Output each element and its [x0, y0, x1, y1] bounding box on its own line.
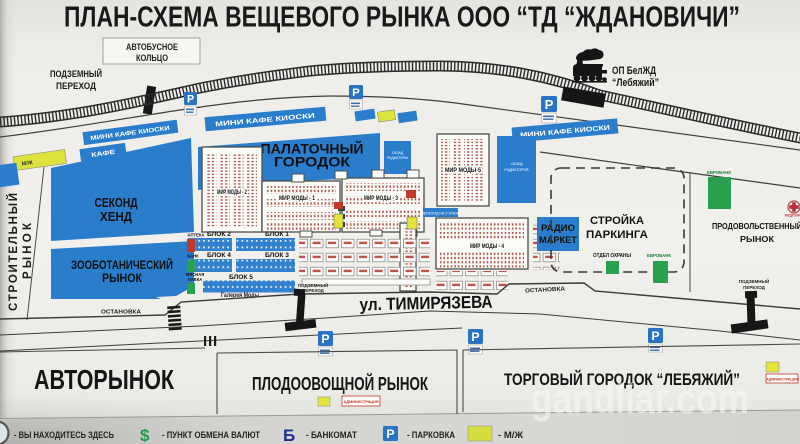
- svg-text:ПЕРЕХОД: ПЕРЕХОД: [743, 285, 766, 290]
- svg-text:Б: Б: [283, 426, 295, 444]
- svg-text:- ПАРКОВКА: - ПАРКОВКА: [407, 430, 455, 440]
- svg-text:МИР МОДЫ - 4: МИР МОДЫ - 4: [470, 243, 504, 250]
- svg-text:ПЛОДООВОЩНОЙ РЫНОК: ПЛОДООВОЩНОЙ РЫНОК: [252, 373, 429, 394]
- svg-text:ПОДЗЕМНЫЙ: ПОДЗЕМНЫЙ: [50, 68, 102, 80]
- svg-text:- ПУНКТ ОБМЕНА ВАЛЮТ: - ПУНКТ ОБМЕНА ВАЛЮТ: [162, 430, 260, 440]
- svg-text:$: $: [140, 426, 150, 444]
- svg-text:МЕДПУНКТ: МЕДПУНКТ: [785, 214, 800, 218]
- svg-text:РЫНОК: РЫНОК: [102, 273, 143, 285]
- svg-text:МИР МОДЫ - 2: МИР МОДЫ - 2: [217, 189, 247, 196]
- svg-text:МАРКЕТ: МАРКЕТ: [539, 235, 577, 246]
- svg-text:ЕВРОБАНК: ЕВРОБАНК: [647, 253, 671, 258]
- svg-text:“Лебяжий”: “Лебяжий”: [612, 77, 659, 89]
- svg-text:БЛОК 4: БЛОК 4: [207, 252, 231, 259]
- svg-text:БЛОК 3: БЛОК 3: [265, 252, 289, 259]
- svg-text:P: P: [352, 87, 360, 99]
- svg-text:P: P: [651, 329, 659, 343]
- svg-text:gandliar.com: gandliar.com: [531, 375, 749, 422]
- svg-text:ПЕРЕХОД НА 2 ЭТАЖ: ПЕРЕХОД НА 2 ЭТАЖ: [421, 212, 459, 216]
- svg-text:СКЛАД: СКЛАД: [392, 151, 404, 155]
- svg-text:ПЕРЕХОД: ПЕРЕХОД: [302, 288, 325, 293]
- svg-text:БЛОК 1: БЛОК 1: [265, 231, 289, 238]
- svg-text:P: P: [187, 93, 194, 105]
- svg-text:ПЛАН-СХЕМА ВЕЩЕВОГО РЫНКА ООО: ПЛАН-СХЕМА ВЕЩЕВОГО РЫНКА ООО “ТД “ЖДАНО…: [64, 2, 740, 34]
- svg-text:P: P: [386, 427, 394, 441]
- svg-text:АДМИНИСТРАЦИЯ: АДМИНИСТРАЦИЯ: [343, 400, 378, 404]
- svg-text:МИР МОДЫ - 3: МИР МОДЫ - 3: [364, 195, 398, 202]
- svg-text:- М/Ж: - М/Ж: [498, 430, 524, 440]
- svg-text:ГОРОДОК: ГОРОДОК: [274, 154, 350, 170]
- svg-text:СТРОИТЕЛЬНЫЙ: СТРОИТЕЛЬНЫЙ: [7, 193, 20, 311]
- svg-text:ОТДЕЛ ОХРАНЫ: ОТДЕЛ ОХРАНЫ: [593, 253, 632, 259]
- svg-text:АВТОРЫНОК: АВТОРЫНОК: [34, 364, 175, 395]
- svg-text:РАДИАТОРОВ: РАДИАТОРОВ: [504, 168, 529, 172]
- svg-text:СТРОЙКА: СТРОЙКА: [590, 214, 644, 227]
- svg-text:РАДИО: РАДИО: [541, 223, 575, 234]
- svg-text:ХЕНД: ХЕНД: [100, 210, 132, 224]
- svg-text:РАДИАТОРЫ: РАДИАТОРЫ: [387, 156, 408, 160]
- svg-text:ПЕРЕХОД: ПЕРЕХОД: [56, 81, 96, 92]
- svg-text:P: P: [545, 97, 554, 112]
- svg-text:РЫНОК: РЫНОК: [740, 235, 774, 244]
- svg-text:ПОДЗЕМНЫЙ: ПОДЗЕМНЫЙ: [298, 281, 328, 288]
- svg-text:СЕКОНД: СЕКОНД: [95, 196, 138, 210]
- svg-text:ул. ТИМИРЯЗЕВА: ул. ТИМИРЯЗЕВА: [359, 292, 493, 315]
- svg-text:ПОДЗЕМНЫЙ: ПОДЗЕМНЫЙ: [739, 277, 769, 284]
- svg-text:КОЛЬЦО: КОЛЬЦО: [136, 53, 168, 64]
- svg-text:ЛАВКА: ЛАВКА: [188, 277, 203, 282]
- svg-text:БЛОК 2: БЛОК 2: [207, 231, 231, 238]
- svg-text:БАНК: БАНК: [187, 254, 199, 259]
- svg-text:P: P: [321, 332, 329, 346]
- svg-text:АДМИНИСТРАЦИЯ: АДМИНИСТРАЦИЯ: [766, 378, 798, 382]
- svg-text:ПАРКИНГА: ПАРКИНГА: [586, 229, 648, 241]
- svg-text:- БАНКОМАТ: - БАНКОМАТ: [306, 430, 357, 440]
- svg-text:ЕВРОБАНК: ЕВРОБАНК: [707, 170, 731, 175]
- svg-text:АПТЕКА: АПТЕКА: [188, 233, 205, 238]
- svg-text:БЛОК 5: БЛОК 5: [229, 274, 253, 281]
- svg-text:АВТОБУСНОЕ: АВТОБУСНОЕ: [126, 42, 178, 53]
- svg-text:ОП БелЖД: ОП БелЖД: [612, 65, 656, 77]
- svg-text:ПРОДОВОЛЬСТВЕННЫЙ: ПРОДОВОЛЬСТВЕННЫЙ: [712, 222, 800, 231]
- svg-text:- ВЫ НАХОДИТЕСЬ ЗДЕСЬ: - ВЫ НАХОДИТЕСЬ ЗДЕСЬ: [14, 430, 114, 440]
- svg-text:ОСТАНОВКА: ОСТАНОВКА: [101, 310, 142, 316]
- svg-text:ЗООБОТАНИЧЕСКИЙ: ЗООБОТАНИЧЕСКИЙ: [71, 259, 173, 272]
- svg-text:МИР МОДЫ-5: МИР МОДЫ-5: [445, 167, 481, 174]
- svg-text:СКЛАД: СКЛАД: [511, 162, 524, 166]
- svg-text:МИР МОДЫ - 1: МИР МОДЫ - 1: [279, 195, 315, 202]
- svg-text:P: P: [471, 330, 479, 344]
